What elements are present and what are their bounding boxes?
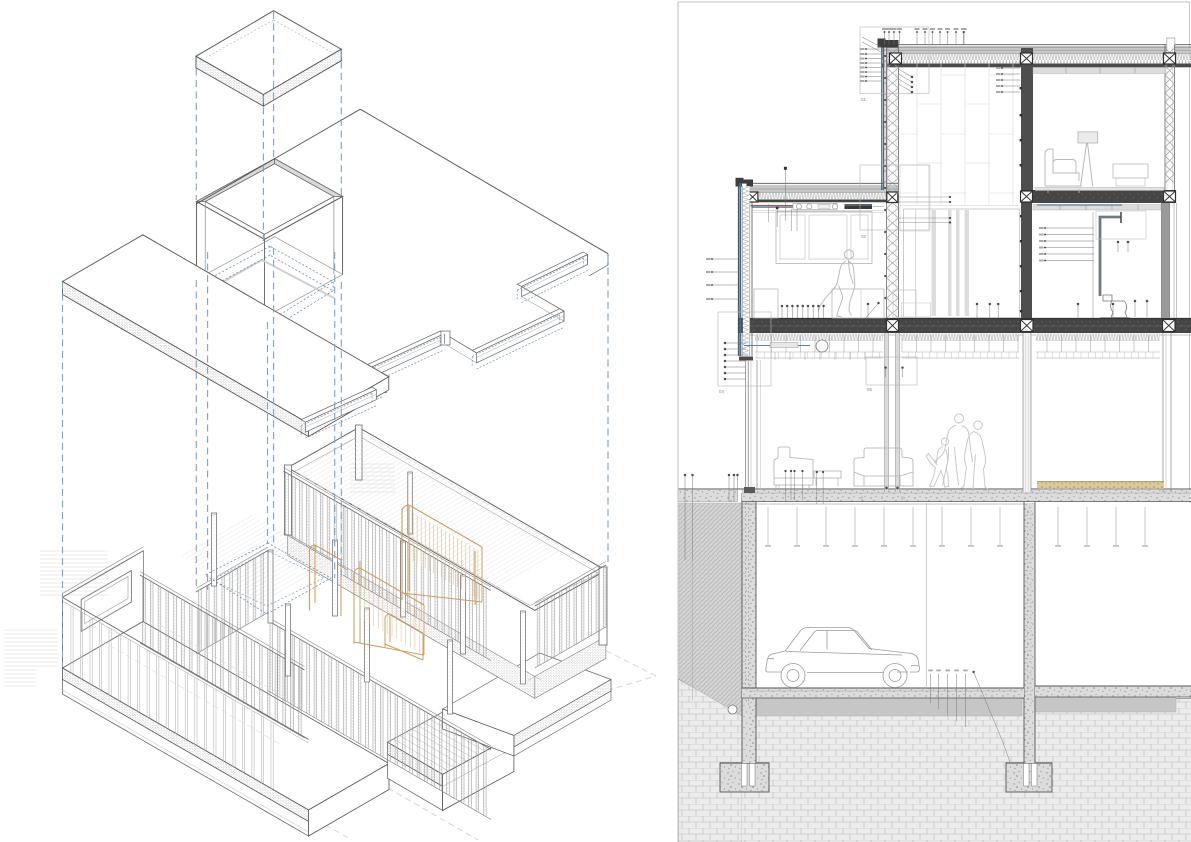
svg-text:02: 02 <box>861 234 867 239</box>
svg-text:04: 04 <box>719 389 725 394</box>
svg-text:01: 01 <box>861 97 867 102</box>
svg-text:05: 05 <box>867 387 873 392</box>
